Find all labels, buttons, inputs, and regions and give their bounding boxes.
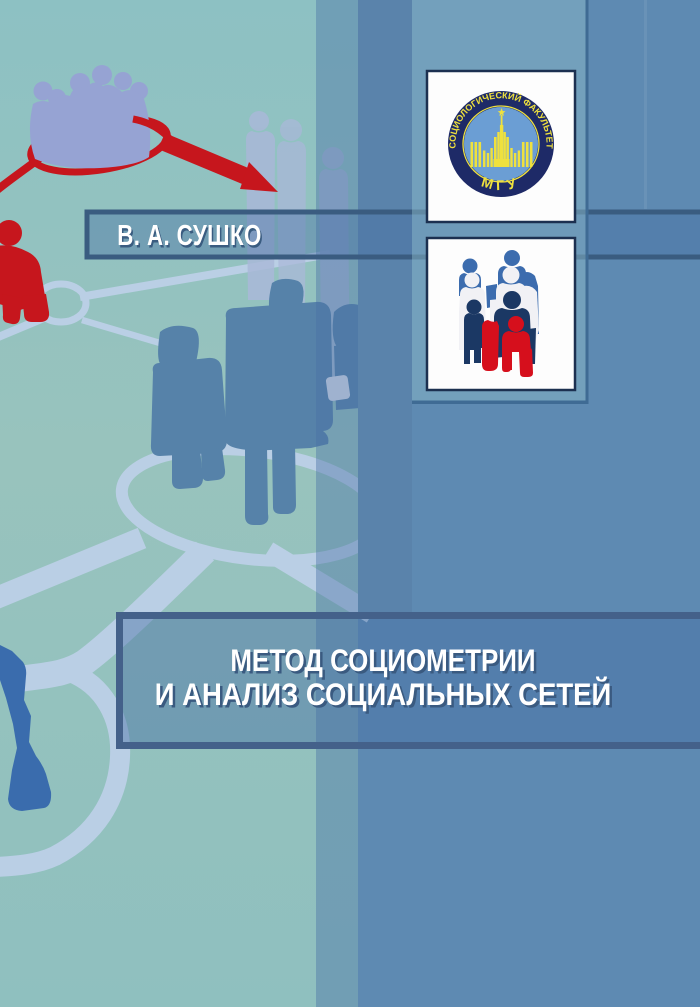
svg-text:В. А. СУШКО: В. А. СУШКО — [117, 220, 261, 251]
svg-text:И АНАЛИЗ СОЦИАЛЬНЫХ СЕТЕЙ: И АНАЛИЗ СОЦИАЛЬНЫХ СЕТЕЙ — [155, 676, 611, 712]
svg-text:МЕТОД СОЦИОМЕТРИИ: МЕТОД СОЦИОМЕТРИИ — [230, 644, 535, 679]
